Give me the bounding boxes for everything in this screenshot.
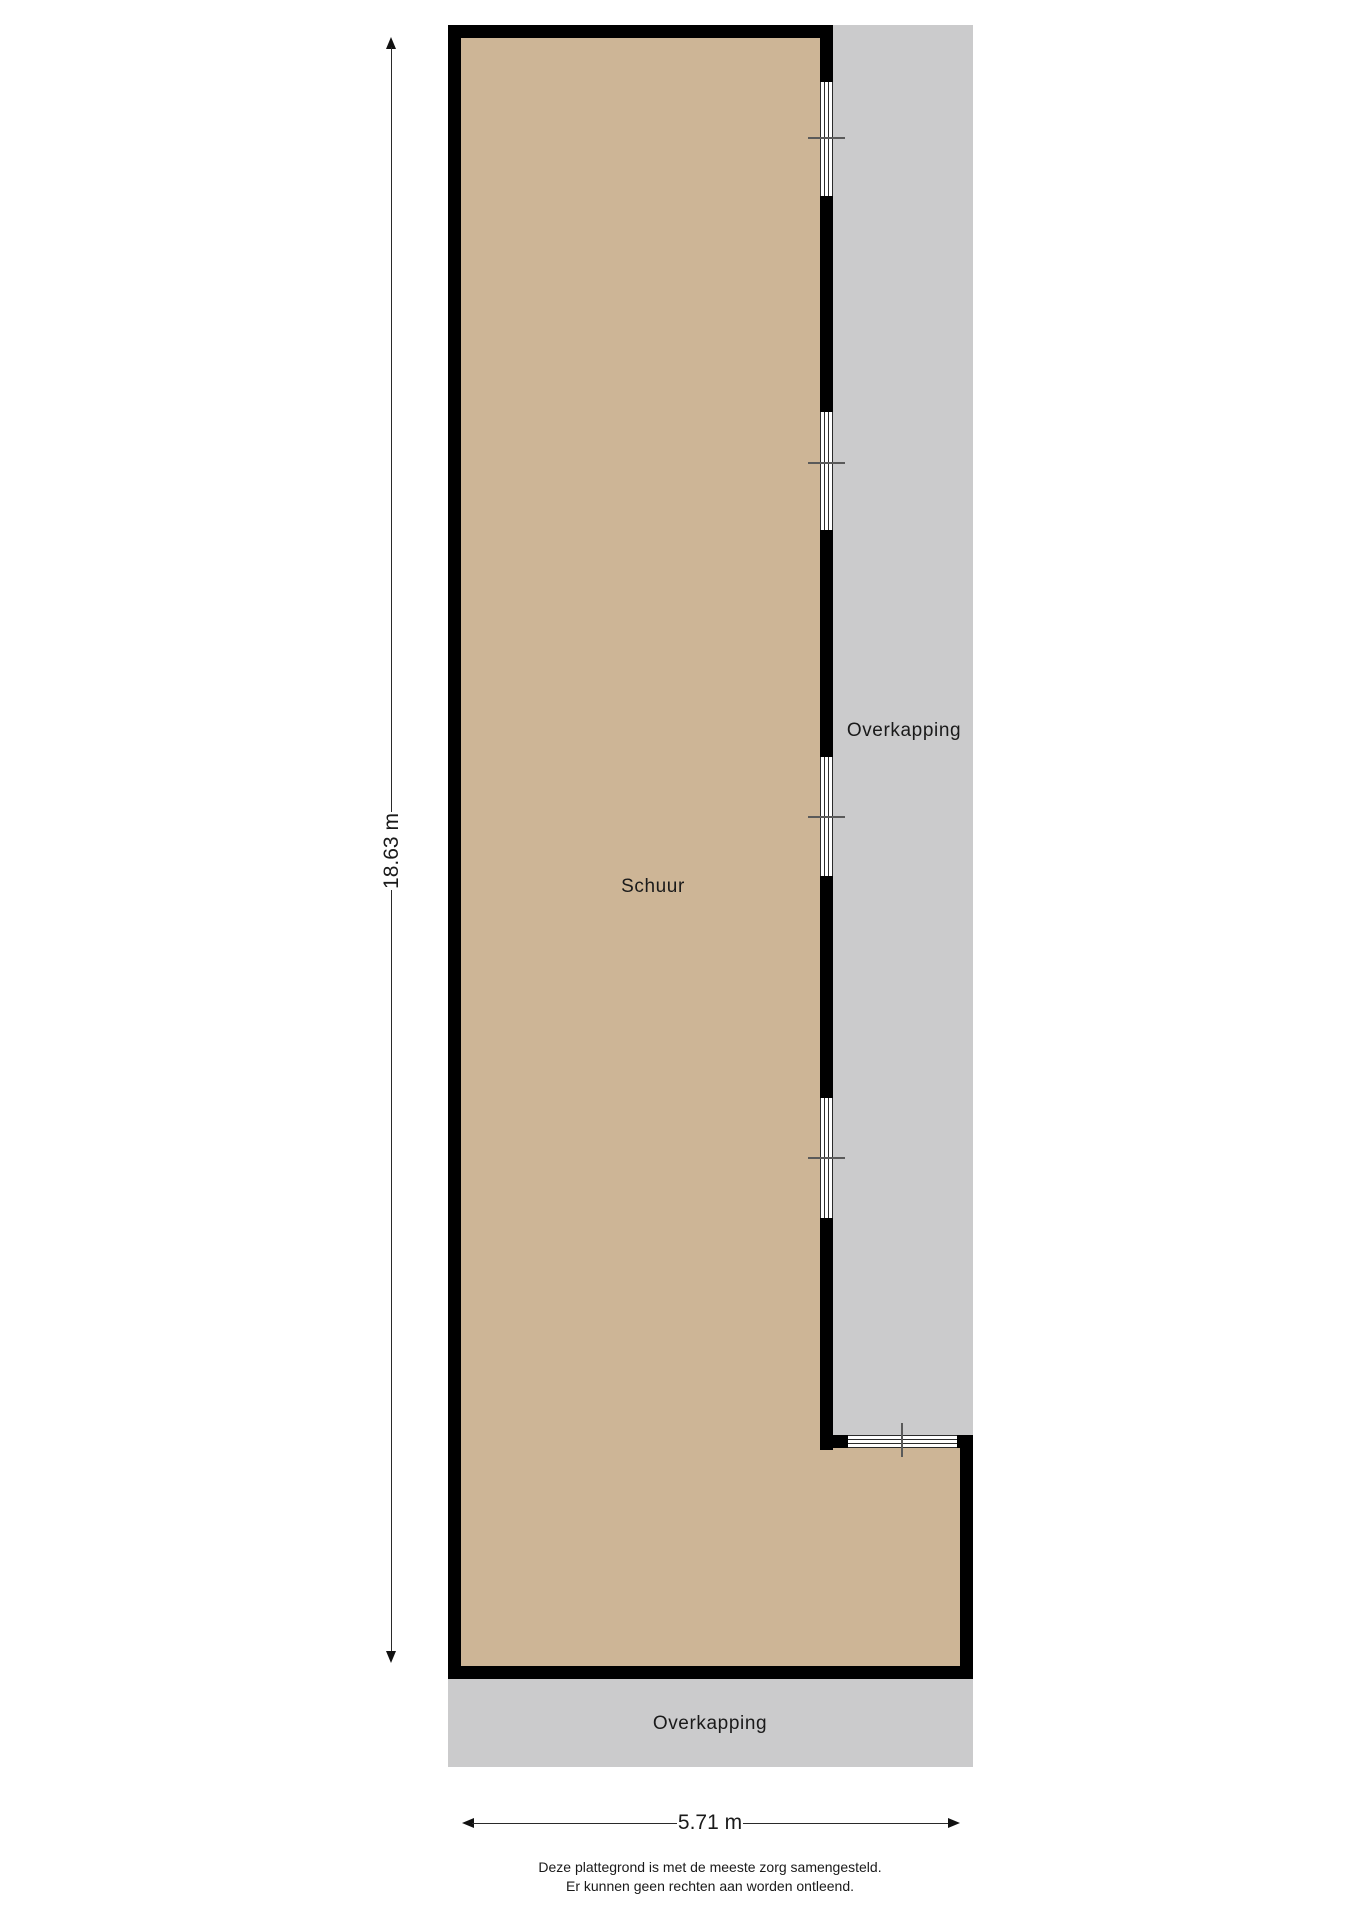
dim-vertical-line-lower xyxy=(391,890,392,1653)
wall-right-segment-1 xyxy=(820,25,833,82)
window-4-tick xyxy=(808,1157,845,1159)
dim-vertical-line-upper xyxy=(391,47,392,812)
dim-horizontal-line-left xyxy=(472,1823,677,1824)
window-5-tick xyxy=(901,1423,903,1457)
wall-bottom xyxy=(448,1666,973,1679)
wall-stub-bottom-window-right xyxy=(957,1435,973,1448)
wall-top xyxy=(448,25,833,38)
window-3-tick xyxy=(808,816,845,818)
height-dimension-label: 18.63 m xyxy=(380,813,404,889)
overkapping-bottom-label: Overkapping xyxy=(653,1713,767,1735)
dim-horizontal-line-right xyxy=(743,1823,950,1824)
window-2-tick xyxy=(808,462,845,464)
schuur-floor-extension xyxy=(820,1448,960,1666)
window-1 xyxy=(820,82,833,196)
overkapping-right-label: Overkapping xyxy=(847,720,961,742)
disclaimer-line-1: Deze plattegrond is met de meeste zorg s… xyxy=(538,1858,881,1877)
floor-plan: 18.63 m 5.71 m Schuur Overkapping Overka… xyxy=(0,0,1358,1920)
window-2 xyxy=(820,412,833,530)
wall-right-segment-2 xyxy=(820,196,833,412)
wall-right-segment-4 xyxy=(820,876,833,1098)
width-dimension-label: 5.71 m xyxy=(678,1811,742,1835)
arrow-right-icon xyxy=(948,1818,960,1828)
window-1-tick xyxy=(808,137,845,139)
arrow-down-icon xyxy=(386,1651,396,1663)
wall-right-lower xyxy=(960,1448,973,1666)
wall-stub-bottom-window-left xyxy=(833,1435,848,1448)
wall-left xyxy=(448,25,461,1679)
wall-right-segment-3 xyxy=(820,530,833,757)
schuur-floor xyxy=(461,37,820,1666)
schuur-label: Schuur xyxy=(621,876,685,898)
disclaimer-line-2: Er kunnen geen rechten aan worden ontlee… xyxy=(538,1877,881,1896)
disclaimer-text: Deze plattegrond is met de meeste zorg s… xyxy=(538,1858,881,1896)
wall-right-segment-5 xyxy=(820,1218,833,1450)
